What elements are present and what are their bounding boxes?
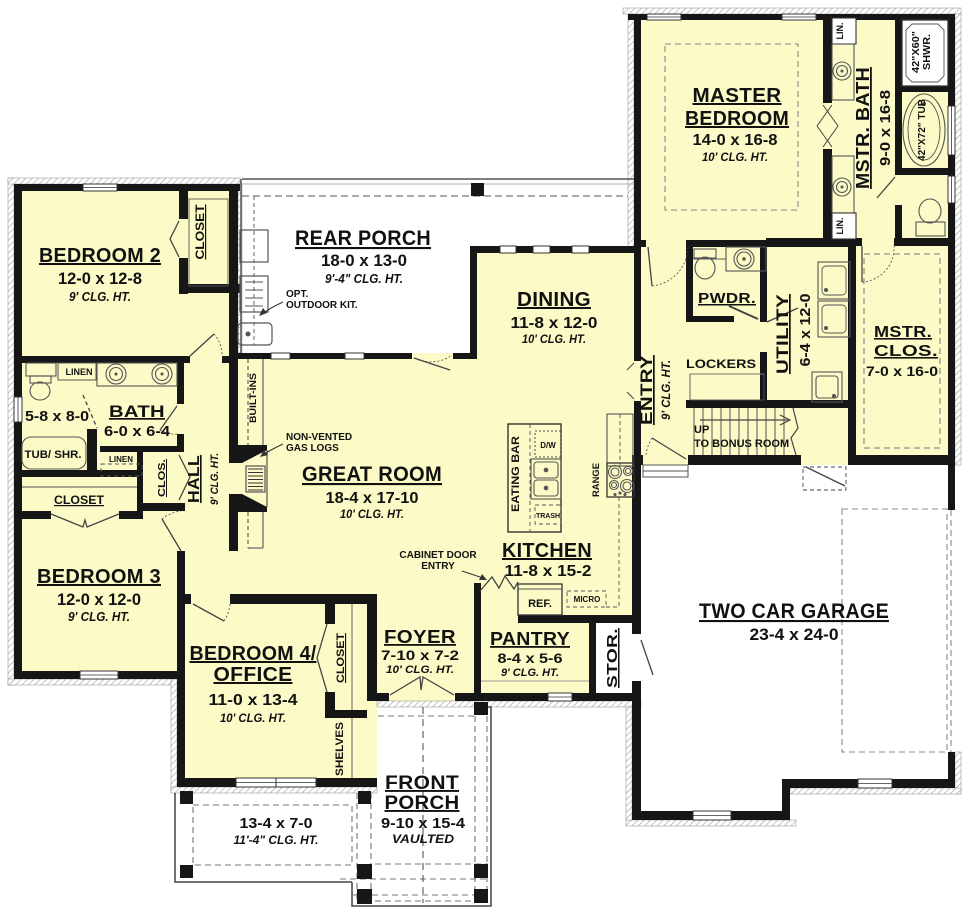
svg-text:11-8 x 15-2: 11-8 x 15-2: [505, 563, 592, 580]
svg-text:D/W: D/W: [540, 441, 556, 450]
svg-text:KITCHEN: KITCHEN: [502, 540, 592, 562]
svg-text:DINING: DINING: [517, 289, 591, 311]
svg-text:PWDR.: PWDR.: [698, 290, 756, 307]
svg-text:OUTDOOR KIT.: OUTDOOR KIT.: [286, 300, 358, 311]
svg-text:10' CLG. HT.: 10' CLG. HT.: [522, 332, 586, 346]
svg-text:11-0 x 13-4: 11-0 x 13-4: [209, 692, 298, 709]
svg-text:CABINET DOOR: CABINET DOOR: [399, 550, 477, 561]
svg-text:LIN.: LIN.: [835, 23, 845, 40]
svg-text:18-0 x 13-0: 18-0 x 13-0: [321, 251, 407, 270]
svg-text:9' CLG. HT.: 9' CLG. HT.: [501, 667, 559, 679]
svg-text:10' CLG. HT.: 10' CLG. HT.: [386, 664, 454, 676]
svg-text:GAS LOGS: GAS LOGS: [286, 443, 339, 454]
svg-text:TWO CAR GARAGE: TWO CAR GARAGE: [699, 600, 889, 623]
svg-text:VAULTED: VAULTED: [392, 832, 454, 846]
svg-text:ENTRY: ENTRY: [421, 561, 455, 572]
svg-text:42"X72" TUB: 42"X72" TUB: [917, 99, 928, 161]
svg-text:CLOSET: CLOSET: [335, 633, 347, 683]
svg-text:9' CLG. HT.: 9' CLG. HT.: [68, 609, 130, 624]
svg-text:LOCKERS: LOCKERS: [686, 357, 756, 371]
svg-text:CLOSET: CLOSET: [193, 204, 207, 260]
svg-text:13-4 x 7-0: 13-4 x 7-0: [240, 815, 313, 832]
svg-text:GREAT ROOM: GREAT ROOM: [302, 463, 442, 486]
svg-text:FRONT: FRONT: [385, 773, 459, 794]
svg-text:SHELVES: SHELVES: [334, 722, 346, 776]
svg-text:PORCH: PORCH: [385, 793, 460, 814]
svg-text:BEDROOM: BEDROOM: [685, 108, 789, 130]
svg-text:9-0 x 16-8: 9-0 x 16-8: [877, 90, 894, 166]
svg-text:REAR PORCH: REAR PORCH: [295, 227, 431, 250]
svg-text:SHWR.: SHWR.: [922, 34, 933, 70]
svg-text:12-0 x 12-0: 12-0 x 12-0: [57, 590, 141, 609]
svg-text:MSTR.: MSTR.: [874, 324, 932, 341]
svg-text:CLOSET: CLOSET: [54, 493, 105, 507]
svg-text:12-0 x 12-8: 12-0 x 12-8: [58, 269, 142, 288]
svg-text:7-0 x 16-0: 7-0 x 16-0: [866, 363, 938, 379]
svg-text:TRASH: TRASH: [536, 513, 560, 520]
svg-text:LINEN: LINEN: [109, 455, 133, 464]
svg-text:11'-4" CLG. HT.: 11'-4" CLG. HT.: [234, 833, 319, 847]
svg-text:MASTER: MASTER: [693, 85, 782, 107]
svg-text:PANTRY: PANTRY: [490, 629, 570, 649]
svg-text:LINEN: LINEN: [66, 367, 93, 377]
svg-text:BEDROOM 4/: BEDROOM 4/: [190, 643, 317, 665]
svg-text:5-8 x 8-0: 5-8 x 8-0: [25, 408, 89, 425]
svg-text:MICRO: MICRO: [574, 595, 601, 604]
svg-text:OPT.: OPT.: [286, 289, 308, 300]
svg-text:8-4 x 5-6: 8-4 x 5-6: [498, 650, 563, 666]
svg-text:18-4 x 17-10: 18-4 x 17-10: [326, 490, 419, 507]
svg-text:FOYER: FOYER: [384, 627, 456, 647]
svg-text:LIN.: LIN.: [835, 218, 845, 235]
svg-text:OFFICE: OFFICE: [214, 664, 293, 686]
svg-text:HALL: HALL: [186, 455, 203, 503]
svg-text:9-10 x 15-4: 9-10 x 15-4: [381, 815, 466, 832]
svg-text:BEDROOM 3: BEDROOM 3: [37, 566, 161, 588]
svg-text:9' CLG. HT.: 9' CLG. HT.: [659, 360, 673, 420]
svg-text:9'-4" CLG. HT.: 9'-4" CLG. HT.: [325, 271, 403, 286]
svg-text:23-4 x 24-0: 23-4 x 24-0: [750, 625, 839, 644]
svg-text:14-0 x 16-8: 14-0 x 16-8: [693, 132, 778, 149]
svg-text:NON-VENTED: NON-VENTED: [286, 432, 352, 443]
svg-text:CLOS.: CLOS.: [874, 343, 938, 360]
svg-text:6-4 x 12-0: 6-4 x 12-0: [797, 294, 814, 367]
svg-text:10' CLG. HT.: 10' CLG. HT.: [220, 711, 286, 725]
svg-text:BUILT-INS: BUILT-INS: [248, 373, 258, 423]
svg-text:10' CLG. HT.: 10' CLG. HT.: [340, 507, 404, 521]
svg-text:7-10 x 7-2: 7-10 x 7-2: [381, 647, 459, 663]
svg-text:UTILITY: UTILITY: [773, 294, 792, 374]
svg-text:EATING BAR: EATING BAR: [510, 436, 522, 512]
svg-text:BATH: BATH: [109, 402, 165, 421]
svg-text:6-0 x 6-4: 6-0 x 6-4: [104, 423, 171, 440]
svg-text:REF.: REF.: [528, 598, 552, 610]
svg-text:11-8 x 12-0: 11-8 x 12-0: [511, 315, 598, 332]
svg-text:42"X60": 42"X60": [911, 31, 922, 73]
svg-text:10' CLG. HT.: 10' CLG. HT.: [702, 150, 768, 164]
svg-text:TUB/ SHR.: TUB/ SHR.: [25, 449, 82, 461]
svg-text:CLOS.: CLOS.: [157, 459, 168, 497]
svg-text:RANGE: RANGE: [591, 463, 601, 497]
svg-text:ENTRY: ENTRY: [637, 355, 656, 425]
svg-text:STOR.: STOR.: [604, 628, 621, 688]
svg-text:MSTR. BATH: MSTR. BATH: [853, 67, 873, 189]
svg-text:9' CLG. HT.: 9' CLG. HT.: [69, 289, 131, 304]
svg-text:TO BONUS ROOM: TO BONUS ROOM: [694, 438, 789, 450]
svg-text:UP: UP: [694, 424, 709, 436]
svg-text:BEDROOM 2: BEDROOM 2: [39, 245, 161, 267]
svg-text:9' CLG. HT.: 9' CLG. HT.: [209, 453, 221, 505]
